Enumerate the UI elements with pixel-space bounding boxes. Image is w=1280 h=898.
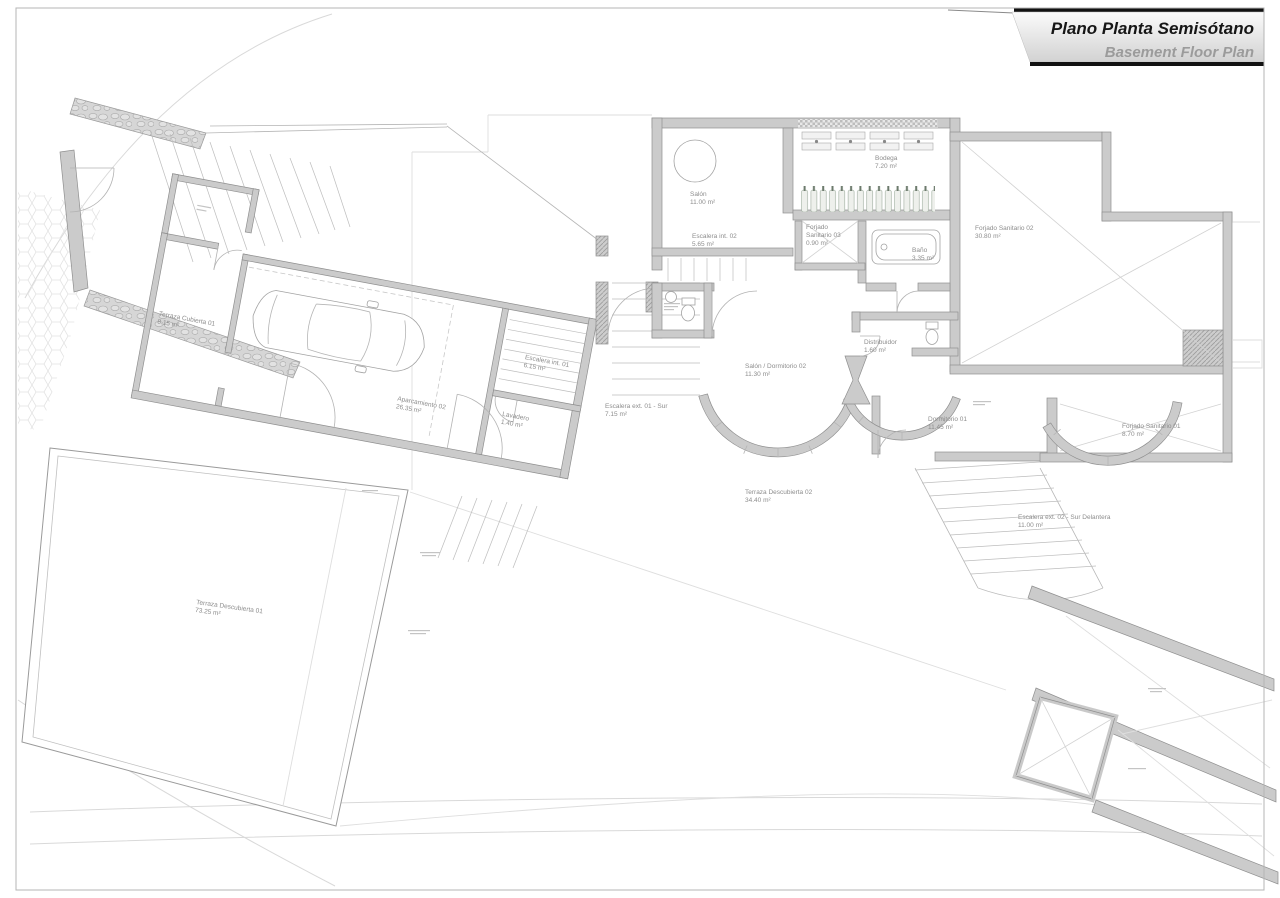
room-area-salon-dormitorio-02: 11.30 m² (745, 371, 771, 378)
room-area-distribuidor: 1.60 m² (864, 347, 887, 354)
bay-wall-salon-dormitorio-02 (699, 394, 857, 457)
title-block-top-bar (1014, 8, 1264, 12)
room-area-forjado-sanitario-02: 30.80 m² (975, 233, 1001, 240)
wc-toilet (682, 298, 696, 321)
plan-title-spanish: Plano Planta Semisótano (1051, 19, 1254, 38)
room-area-escalera-int-02: 5.65 m² (692, 241, 715, 248)
room-area-bano: 3.35 m² (912, 255, 935, 262)
room-area-bodega: 7.20 m² (875, 163, 898, 170)
room-label-terraza-descubierta-02: Terraza Descubierta 02 (745, 489, 813, 496)
plan-title-english: Basement Floor Plan (1105, 44, 1254, 61)
room-area-escalera-ext-01: 7.15 m² (605, 411, 628, 418)
title-block-leader-line (948, 10, 1014, 13)
terrace-01-deck (22, 448, 537, 826)
room-label-dormitorio-01: Dormitorio 01 (928, 416, 967, 423)
drawing-sheet: Terraza Cubierta 01 8.15 m² Aparcamiento… (0, 0, 1280, 898)
room-area-dormitorio-01: 11.45 m² (928, 424, 954, 431)
access-ramps (1016, 586, 1278, 884)
wc-sink (666, 292, 677, 303)
interior-stair-02-treads (668, 258, 746, 281)
room-area-forjado-sanitario-03: 0.90 m² (806, 240, 829, 247)
garage-wing: Terraza Cubierta 01 8.15 m² Aparcamiento… (131, 174, 609, 479)
room-area-forjado-sanitario-01: 8.70 m² (1122, 431, 1145, 438)
wc-door-arc (712, 291, 757, 336)
room-label-escalera-ext-01: Escalera ext. 01 - Sur (605, 403, 668, 410)
room-label-salon-dormitorio-02: Salón / Dormitorio 02 (745, 363, 806, 370)
bodega-top-wall-texture (798, 119, 938, 128)
room-area-salon: 11.00 m² (690, 199, 716, 206)
basement-floor-plan: Terraza Cubierta 01 8.15 m² Aparcamiento… (0, 0, 1280, 898)
room-label-salon: Salón (690, 191, 707, 198)
terrace-01-stair-treads (438, 496, 537, 568)
title-block: Plano Planta Semisótano Basement Floor P… (948, 8, 1264, 66)
bay-mullion (842, 356, 870, 404)
niche-toilet (926, 322, 938, 345)
wine-bottles-row (800, 186, 935, 212)
room-label-forjado-sanitario-01: Forjado Sanitario 01 (1122, 423, 1181, 430)
room-label-distribuidor: Distribuidor (864, 339, 898, 346)
room-area-terraza-descubierta-02: 34.40 m² (745, 497, 771, 504)
room-area-escalera-ext-02: 11.00 m² (1018, 522, 1044, 529)
room-label-escalera-ext-02: Escalera ext. 02 - Sur Delantera (1018, 514, 1111, 521)
room-label-bodega: Bodega (875, 155, 898, 162)
room-label2-forjado-sanitario-03: Sanitario 03 (806, 232, 841, 239)
interior-stair-01-treads (499, 320, 587, 393)
hex-terrain-texture (18, 188, 100, 430)
room-label-forjado-sanitario-03: Forjado (806, 224, 828, 231)
round-table (674, 140, 716, 182)
south-exterior-stair-02 (915, 462, 1103, 600)
bano-door-arc (897, 291, 919, 313)
ramp-landing-box (1016, 697, 1115, 799)
room-label-escalera-int-02: Escalera int. 02 (692, 233, 737, 240)
main-house (652, 118, 1232, 465)
room-label-bano: Baño (912, 247, 928, 254)
room-label-forjado-sanitario-02: Forjado Sanitario 02 (975, 225, 1034, 232)
title-block-bottom-bar (1030, 62, 1264, 66)
wine-rack (800, 131, 936, 153)
